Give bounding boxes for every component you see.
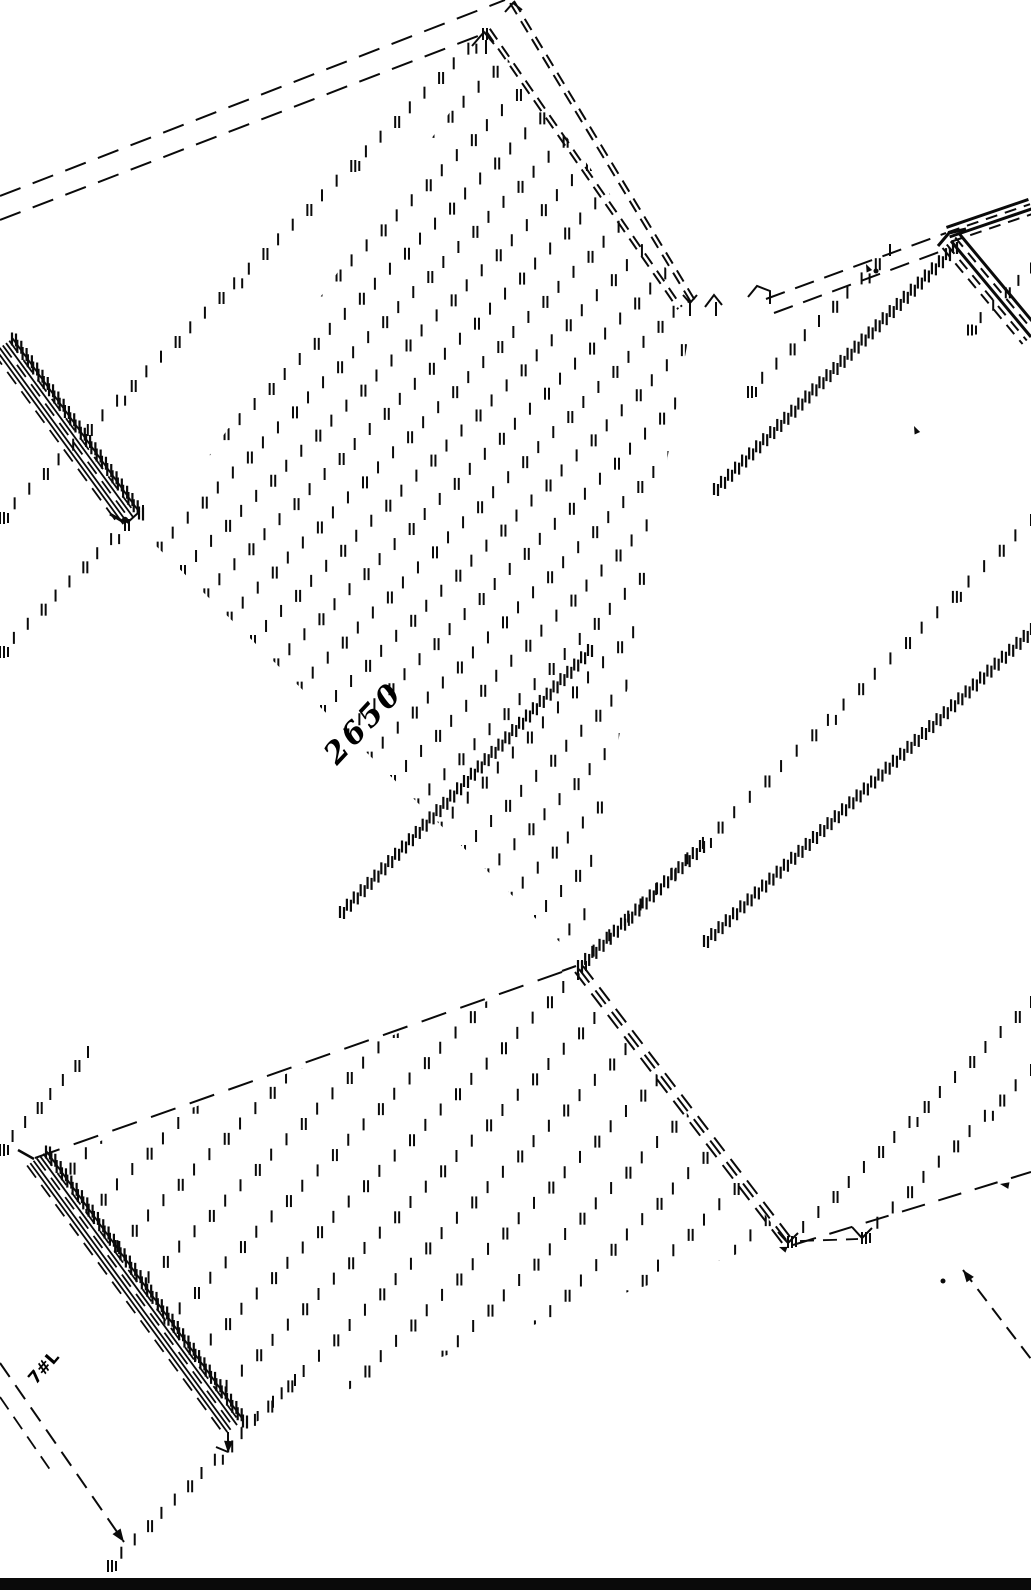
sheet-edge-bar: [0, 1578, 1031, 1590]
hidden-edge-dashed-lines: [0, 0, 1031, 1542]
corner-marks: [18, 3, 966, 1452]
hatch-field-roof-face-lower: [25, 810, 797, 1590]
parapet-ribbons: [0, 199, 1031, 1434]
hatch-field-roof-face-main: [88, 51, 976, 951]
annotation-dots: [122, 269, 946, 1284]
drawing-sheet: 2650 7#L: [0, 0, 1031, 1590]
roof-axonometric-drawing: [0, 0, 1031, 1590]
